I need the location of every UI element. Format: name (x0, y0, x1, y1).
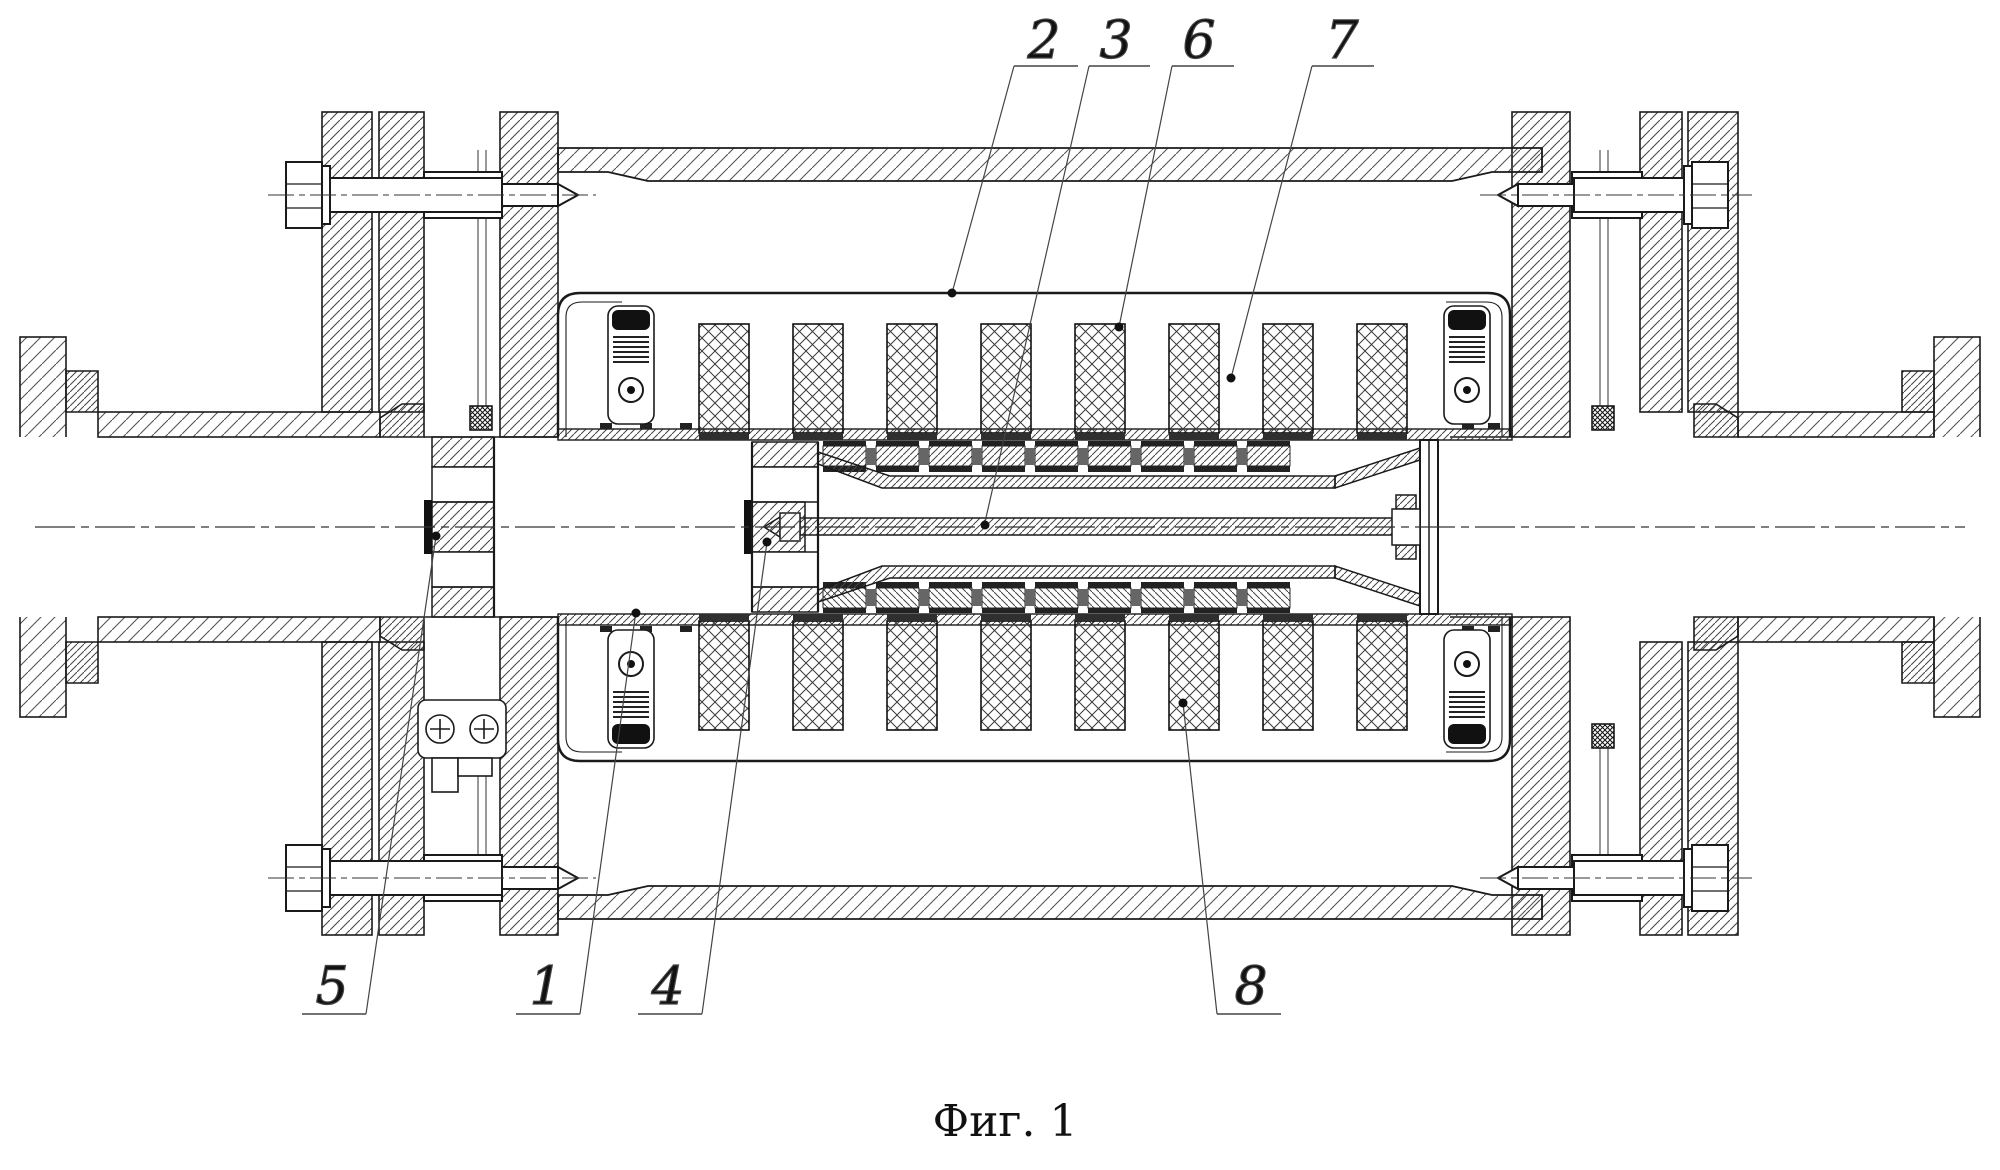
right-pipe-upper-wall (1738, 412, 1934, 437)
callout-5-label: 5 (315, 957, 348, 1017)
gasket (1592, 406, 1614, 430)
callout-8-label: 8 (1234, 957, 1267, 1017)
left-pipe-upper-wall (98, 412, 380, 437)
gasket (470, 406, 492, 430)
patent-figure-page: 2 3 6 7 5 1 (0, 0, 2000, 1170)
technical-drawing-silencer-cross-section: 2 3 6 7 5 1 (0, 0, 2000, 1170)
callout-8: 8 (1179, 699, 1282, 1018)
absorber-blocks-top-row (699, 324, 1407, 440)
absorber-blocks-bottom-row (699, 614, 1407, 730)
shell-top-wall (558, 148, 1542, 181)
right-end-cap-assembly (1450, 112, 1738, 935)
shell-bottom-wall (558, 886, 1542, 919)
callout-6-label: 6 (1182, 11, 1215, 71)
callout-2-label: 2 (1026, 11, 1060, 71)
left-pipe-lower-wall (98, 617, 380, 642)
callout-7-label: 7 (1325, 11, 1359, 71)
gasket (1592, 724, 1614, 748)
right-pipe-lower-wall (1738, 617, 1934, 642)
callout-4-label: 4 (650, 957, 684, 1017)
callout-1-label: 1 (529, 957, 562, 1017)
drain-bracket (418, 700, 506, 792)
figure-caption: Фиг. 1 (933, 1096, 1078, 1147)
callout-3-label: 3 (1099, 11, 1132, 71)
